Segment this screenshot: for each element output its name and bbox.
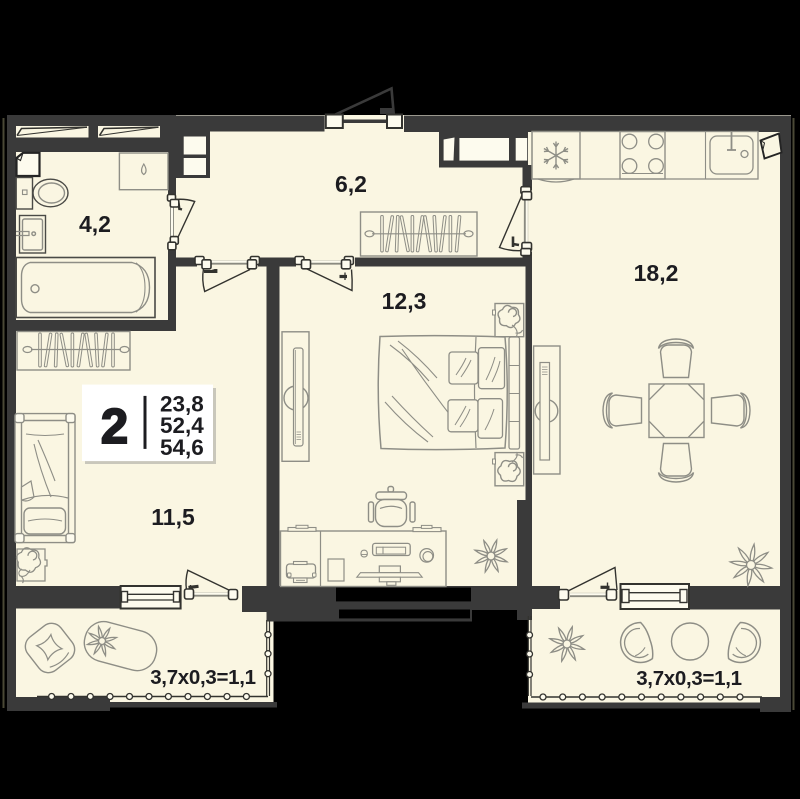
svg-text:3,7х0,3=1,1: 3,7х0,3=1,1 <box>150 666 256 689</box>
svg-text:18,2: 18,2 <box>634 260 679 286</box>
svg-text:54,6: 54,6 <box>160 435 204 460</box>
svg-text:12,3: 12,3 <box>382 288 427 314</box>
svg-text:4,2: 4,2 <box>79 211 111 237</box>
svg-text:11,5: 11,5 <box>151 504 195 530</box>
svg-text:2: 2 <box>101 400 128 454</box>
svg-text:3,7х0,3=1,1: 3,7х0,3=1,1 <box>636 667 742 690</box>
svg-text:6,2: 6,2 <box>335 171 367 197</box>
